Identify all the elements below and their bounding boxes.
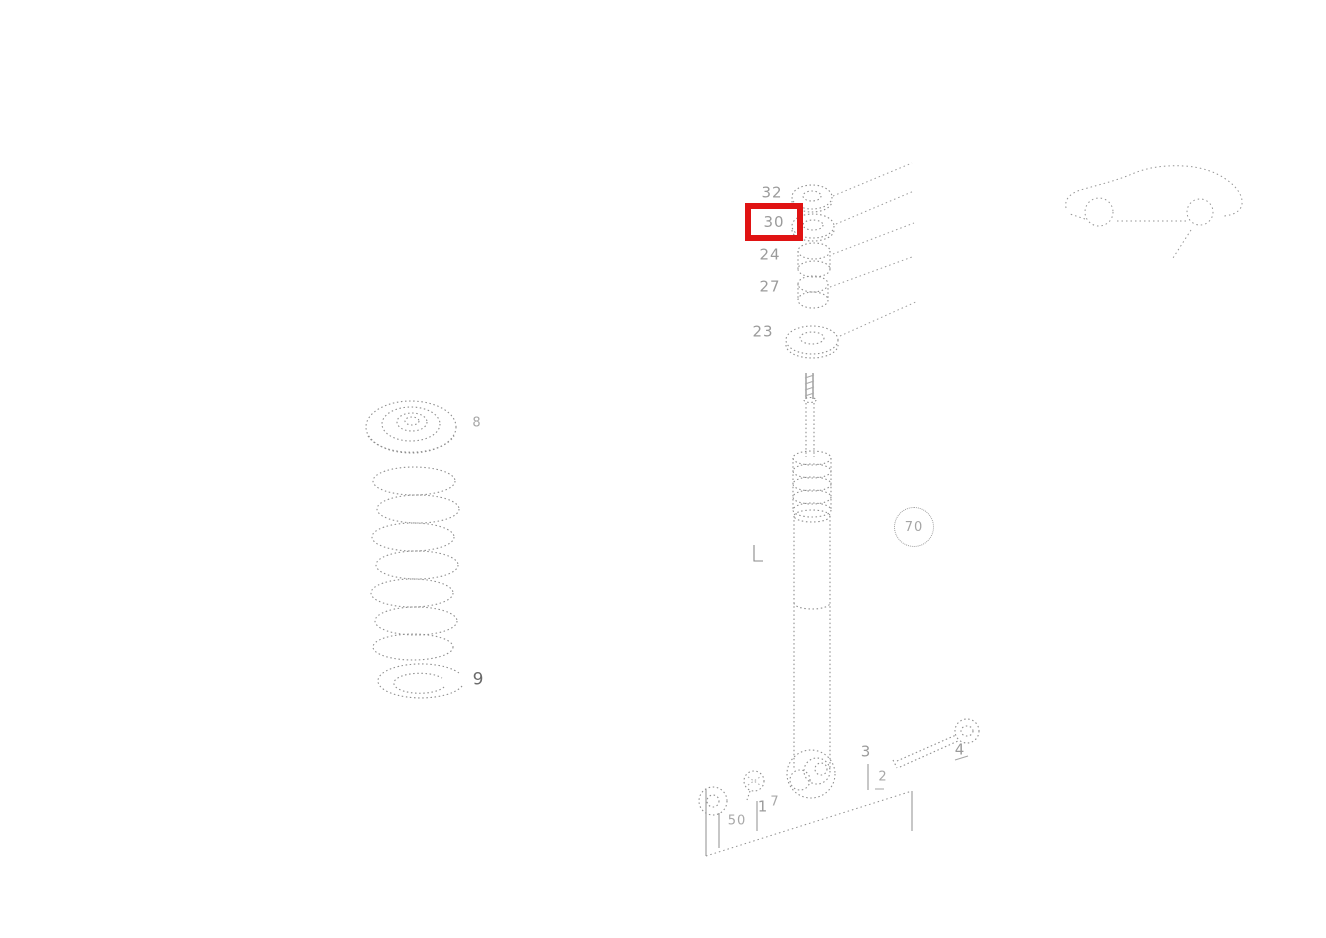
small-bolt-icon (744, 771, 764, 800)
panel-outline (706, 756, 968, 856)
diagram-artwork (0, 0, 1326, 938)
coil-spring-icon (371, 467, 459, 660)
spring-lower-seat-icon (378, 664, 462, 698)
callout-27[interactable]: 27 (759, 280, 780, 295)
callout-50[interactable]: 50 (728, 815, 747, 828)
callout-70[interactable]: 70 (905, 521, 924, 534)
parts-diagram-canvas: 32 30 24 27 23 8 9 70 50 1 7 3 2 4 (0, 0, 1326, 938)
callout-2[interactable]: 2 (878, 771, 887, 784)
circled-reference-70[interactable]: 70 (894, 507, 934, 547)
leader-lines (830, 163, 918, 336)
mounting-bolt-icon (893, 719, 979, 768)
spring-top-mount-icon (366, 401, 456, 453)
callout-9[interactable]: 9 (473, 672, 484, 689)
callout-32[interactable]: 32 (761, 186, 782, 201)
callout-23[interactable]: 23 (752, 325, 773, 340)
shock-absorber-icon (754, 373, 835, 798)
callout-4[interactable]: 4 (955, 743, 966, 758)
lower-washer-icon (699, 787, 727, 815)
car-silhouette-icon (1066, 166, 1242, 258)
highlight-box-selected-callout[interactable]: 30 (745, 203, 803, 241)
callout-30[interactable]: 30 (763, 215, 784, 230)
callout-24[interactable]: 24 (759, 248, 780, 263)
callout-8[interactable]: 8 (472, 417, 481, 430)
callout-3[interactable]: 3 (861, 745, 872, 760)
callout-1[interactable]: 1 (758, 800, 769, 815)
callout-7[interactable]: 7 (770, 796, 779, 809)
